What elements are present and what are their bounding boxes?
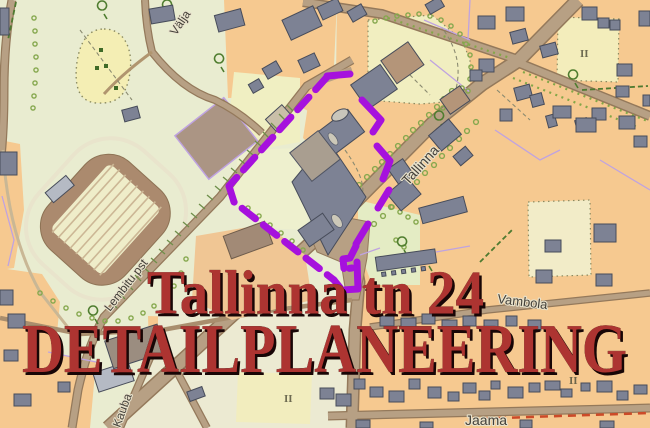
svg-text:II: II: [284, 393, 293, 405]
svg-text:DETAILPLANEERING: DETAILPLANEERING: [22, 311, 627, 388]
svg-text:II: II: [580, 48, 589, 60]
svg-text:Jaama: Jaama: [465, 412, 507, 428]
